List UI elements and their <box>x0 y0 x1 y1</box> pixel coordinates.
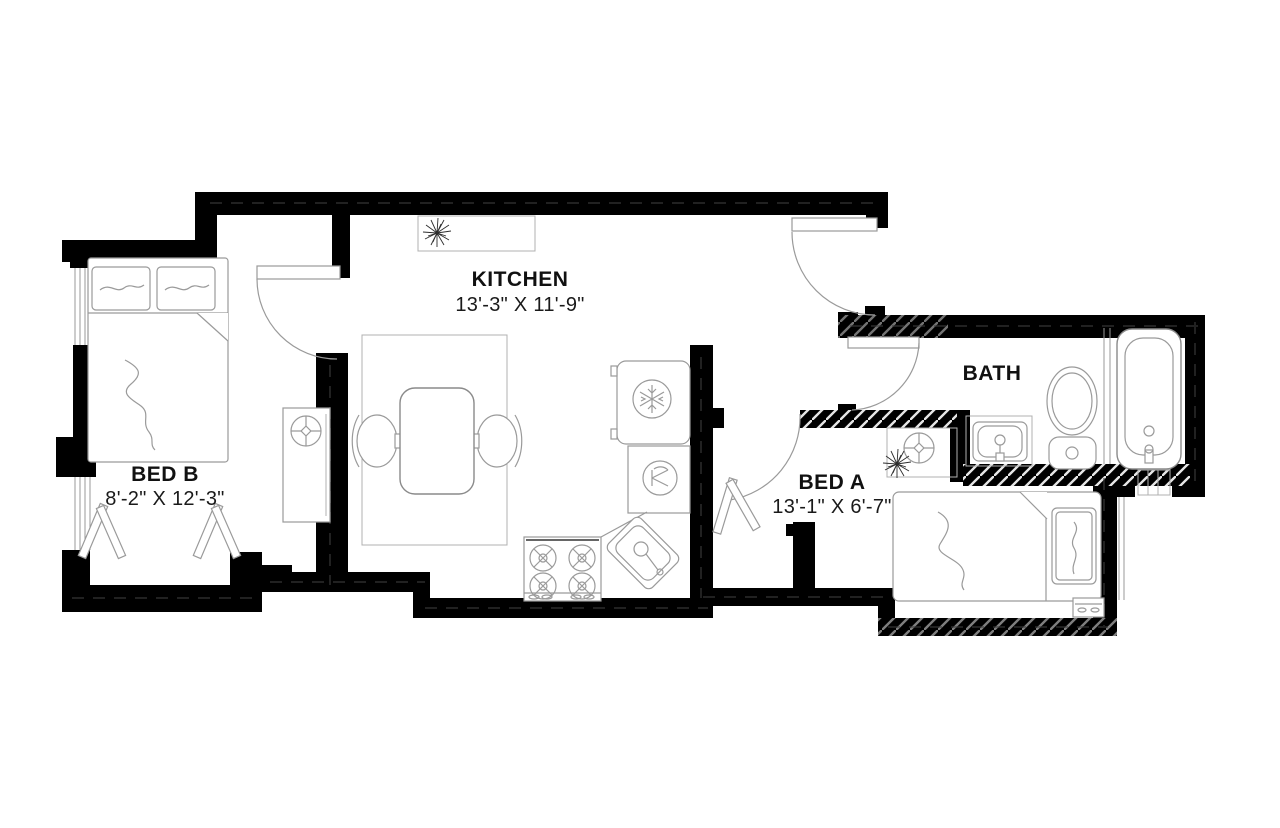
room-bath <box>966 329 1181 469</box>
closet-washer <box>283 408 330 522</box>
wall-segment <box>865 306 885 315</box>
wall-hatch <box>800 410 957 428</box>
door-leaf <box>792 218 877 231</box>
wall-segment <box>56 437 73 477</box>
pillow <box>92 267 150 310</box>
chair <box>471 415 522 467</box>
floor-plan-drawing: KITCHEN 13'-3" X 11'-9" BED B 8'-2" X 12… <box>0 0 1280 828</box>
door-swing <box>792 232 875 315</box>
door-swing <box>257 279 337 359</box>
pillow <box>157 267 215 310</box>
bath-door <box>848 337 919 410</box>
bed-a-door <box>730 414 800 500</box>
floor-plan: KITCHEN 13'-3" X 11'-9" BED B 8'-2" X 12… <box>0 0 1280 828</box>
kitchen-sink <box>601 512 681 591</box>
wall-segment <box>838 404 856 410</box>
wall-segment <box>230 552 262 612</box>
refrigerator <box>611 361 690 444</box>
wall-shelf <box>418 216 535 251</box>
bed-a-label: BED A <box>798 471 865 494</box>
toilet <box>1047 367 1097 469</box>
stove <box>524 537 601 601</box>
window <box>1119 497 1124 600</box>
door-swing <box>852 343 919 410</box>
dishwasher <box>628 446 690 513</box>
drying-rack <box>193 503 240 558</box>
kitchen-dimensions: 13'-3" X 11'-9" <box>455 294 584 316</box>
bed-a-dimensions: 13'-1" X 6'-7" <box>772 496 891 518</box>
drying-rack <box>708 475 761 535</box>
door-leaf <box>848 337 919 348</box>
doors <box>257 218 919 500</box>
double-bed <box>88 258 228 462</box>
entry-door <box>792 218 877 315</box>
shower-screen <box>1104 328 1110 464</box>
bed-b-door <box>257 266 340 359</box>
chair <box>352 415 403 467</box>
bed-b-label: BED B <box>131 463 199 486</box>
plant-icon <box>423 218 451 247</box>
single-bed <box>893 492 1101 601</box>
room-labels: KITCHEN 13'-3" X 11'-9" BED B 8'-2" X 12… <box>105 268 1021 518</box>
laundry-nook <box>883 428 957 478</box>
vanity-sink <box>966 416 1032 466</box>
kitchen-label: KITCHEN <box>472 268 569 291</box>
wall-segment <box>713 408 724 428</box>
door-leaf <box>257 266 340 279</box>
door-swing <box>730 414 800 500</box>
room-bed-b <box>78 258 330 559</box>
dining-table <box>400 388 474 494</box>
wall-segment <box>786 524 794 536</box>
nightstand <box>1073 598 1104 617</box>
bathtub <box>1117 329 1181 469</box>
bed-b-dimensions: 8'-2" X 12'-3" <box>105 488 224 510</box>
wall-segment <box>793 522 815 606</box>
bath-label: BATH <box>963 362 1022 385</box>
